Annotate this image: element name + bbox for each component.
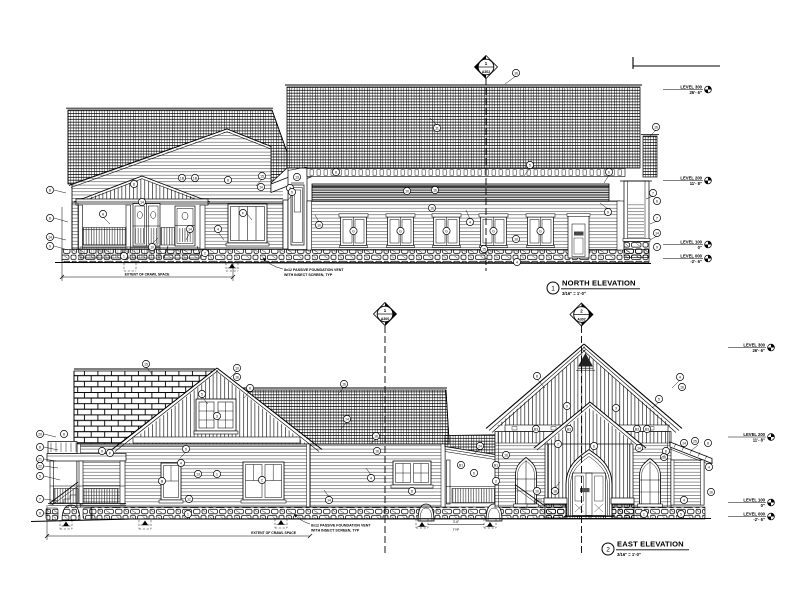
svg-text:1B: 1B xyxy=(193,176,198,180)
svg-text:16: 16 xyxy=(430,206,434,210)
svg-text:B1: B1 xyxy=(494,463,498,467)
svg-text:LEVEL 300: LEVEL 300 xyxy=(743,342,765,347)
svg-text:8: 8 xyxy=(133,182,135,186)
svg-text:F: F xyxy=(109,451,111,455)
svg-text:5: 5 xyxy=(658,397,660,401)
svg-text:3/16" = 1'-0": 3/16" = 1'-0" xyxy=(617,552,641,557)
svg-text:26'- 6": 26'- 6" xyxy=(689,90,702,95)
svg-text:8: 8 xyxy=(63,432,65,436)
svg-text:13: 13 xyxy=(196,472,200,476)
svg-text:4: 4 xyxy=(516,260,518,264)
svg-text:14: 14 xyxy=(637,446,641,450)
svg-text:F: F xyxy=(242,211,244,215)
svg-text:9: 9 xyxy=(39,511,41,515)
svg-text:10: 10 xyxy=(235,366,239,370)
svg-text:4: 4 xyxy=(180,461,182,465)
svg-text:-2'- 6": -2'- 6" xyxy=(690,259,702,264)
svg-text:G: G xyxy=(445,229,448,233)
svg-text:8: 8 xyxy=(227,178,229,182)
svg-text:EAST ELEVATION: EAST ELEVATION xyxy=(617,540,684,549)
svg-text:16: 16 xyxy=(375,449,379,453)
svg-text:6: 6 xyxy=(656,199,658,203)
svg-text:7: 7 xyxy=(557,442,559,446)
svg-text:9: 9 xyxy=(49,244,51,248)
svg-text:3/16" = 1'-0": 3/16" = 1'-0" xyxy=(562,291,586,296)
svg-text:4: 4 xyxy=(679,375,681,379)
svg-text:WITH INSECT SCREEN, TYP: WITH INSECT SCREEN, TYP xyxy=(311,529,360,533)
svg-text:9: 9 xyxy=(101,449,103,453)
svg-text:13: 13 xyxy=(295,175,299,179)
svg-text:LEVEL 200: LEVEL 200 xyxy=(680,175,702,180)
svg-text:2: 2 xyxy=(495,479,497,483)
svg-text:0": 0" xyxy=(761,503,765,508)
svg-text:14: 14 xyxy=(140,200,144,204)
svg-text:4: 4 xyxy=(217,227,219,231)
svg-text:16: 16 xyxy=(504,453,508,457)
svg-text:14: 14 xyxy=(682,441,686,445)
svg-text:3: 3 xyxy=(615,406,617,410)
svg-text:EXTENT OF CRAWL SPACE: EXTENT OF CRAWL SPACE xyxy=(125,273,170,277)
svg-text:WITH INSECT SCREEN, TYP: WITH INSECT SCREEN, TYP xyxy=(284,273,333,277)
svg-text:A302: A302 xyxy=(482,70,490,74)
svg-text:LEVEL 100: LEVEL 100 xyxy=(743,497,765,502)
svg-text:7: 7 xyxy=(39,497,41,501)
svg-text:4: 4 xyxy=(469,220,471,224)
svg-text:10: 10 xyxy=(150,245,154,249)
svg-text:10: 10 xyxy=(709,490,713,494)
svg-text:0": 0" xyxy=(698,245,702,250)
svg-text:14: 14 xyxy=(259,185,263,189)
svg-text:6: 6 xyxy=(593,444,595,448)
svg-text:12: 12 xyxy=(187,497,191,501)
svg-text:16: 16 xyxy=(680,385,684,389)
svg-text:TYP: TYP xyxy=(453,528,459,532)
svg-text:2: 2 xyxy=(606,546,610,553)
svg-text:1: 1 xyxy=(551,285,555,292)
svg-text:1: 1 xyxy=(187,512,189,516)
svg-text:8: 8 xyxy=(536,374,538,378)
svg-text:15: 15 xyxy=(482,247,486,251)
svg-text:14: 14 xyxy=(345,417,349,421)
svg-text:A300: A300 xyxy=(381,317,389,321)
svg-text:1: 1 xyxy=(123,254,125,258)
svg-text:9: 9 xyxy=(185,447,187,451)
svg-text:14: 14 xyxy=(48,235,52,239)
svg-text:B1: B1 xyxy=(459,463,463,467)
svg-text:G: G xyxy=(539,229,542,233)
svg-text:6: 6 xyxy=(249,386,251,390)
svg-text:2: 2 xyxy=(204,251,206,255)
svg-text:14: 14 xyxy=(655,231,659,235)
svg-text:B3: B3 xyxy=(635,427,639,431)
svg-text:10: 10 xyxy=(317,223,321,227)
svg-text:15: 15 xyxy=(260,174,264,178)
svg-text:6: 6 xyxy=(665,449,667,453)
svg-text:1B: 1B xyxy=(180,176,185,180)
svg-text:7: 7 xyxy=(652,191,654,195)
svg-text:8: 8 xyxy=(49,188,51,192)
svg-text:10: 10 xyxy=(405,189,409,193)
svg-text:9: 9 xyxy=(566,404,568,408)
svg-text:16: 16 xyxy=(235,375,239,379)
svg-text:25: 25 xyxy=(693,439,697,443)
svg-text:8: 8 xyxy=(707,441,709,445)
svg-text:LEVEL 000: LEVEL 000 xyxy=(743,511,765,516)
svg-text:G: G xyxy=(399,229,402,233)
svg-text:11'- 8": 11'- 8" xyxy=(753,438,765,443)
svg-text:16: 16 xyxy=(342,382,346,386)
svg-text:LEVEL 300: LEVEL 300 xyxy=(680,84,702,89)
svg-text:EXTENT OF CRAWL SPACE: EXTENT OF CRAWL SPACE xyxy=(251,531,296,535)
svg-text:9: 9 xyxy=(607,210,609,214)
svg-text:16: 16 xyxy=(433,188,437,192)
svg-text:18: 18 xyxy=(553,489,557,493)
svg-text:B3: B3 xyxy=(567,427,571,431)
svg-text:14: 14 xyxy=(188,227,192,231)
svg-text:-2'- 6": -2'- 6" xyxy=(753,517,765,522)
svg-text:G: G xyxy=(492,229,495,233)
svg-text:LEVEL 100: LEVEL 100 xyxy=(680,239,702,244)
svg-text:22: 22 xyxy=(38,464,42,468)
svg-text:9: 9 xyxy=(656,245,658,249)
svg-text:24: 24 xyxy=(478,444,482,448)
svg-text:10: 10 xyxy=(514,237,518,241)
svg-text:9: 9 xyxy=(291,190,293,194)
svg-text:5: 5 xyxy=(39,474,41,478)
svg-text:20: 20 xyxy=(38,432,42,436)
svg-text:21: 21 xyxy=(38,457,42,461)
svg-text:8: 8 xyxy=(49,216,51,220)
svg-text:4: 4 xyxy=(708,465,710,469)
svg-text:5: 5 xyxy=(680,512,682,516)
svg-text:7: 7 xyxy=(656,216,658,220)
svg-text:6: 6 xyxy=(608,170,610,174)
svg-text:14: 14 xyxy=(327,498,331,502)
svg-text:B3: B3 xyxy=(534,427,538,431)
svg-text:8: 8 xyxy=(39,445,41,449)
svg-text:A302: A302 xyxy=(577,317,585,321)
svg-text:5: 5 xyxy=(201,392,203,396)
svg-text:8x12 PASSIVE FOUNDATION VENT: 8x12 PASSIVE FOUNDATION VENT xyxy=(284,268,344,272)
svg-text:LEVEL 000: LEVEL 000 xyxy=(680,253,702,258)
svg-text:G: G xyxy=(352,229,355,233)
svg-text:NORTH ELEVATION: NORTH ELEVATION xyxy=(562,279,636,288)
svg-text:16: 16 xyxy=(514,71,518,75)
svg-text:4: 4 xyxy=(370,476,372,480)
svg-text:1: 1 xyxy=(216,472,218,476)
svg-text:5: 5 xyxy=(529,163,531,167)
svg-text:3: 3 xyxy=(216,414,218,418)
svg-text:B3: B3 xyxy=(645,427,649,431)
svg-text:11: 11 xyxy=(435,126,439,130)
svg-text:4: 4 xyxy=(683,498,685,502)
svg-text:3'-6": 3'-6" xyxy=(453,520,459,524)
svg-text:6: 6 xyxy=(473,471,475,475)
svg-text:LEVEL 200: LEVEL 200 xyxy=(743,432,765,437)
svg-text:16: 16 xyxy=(374,434,378,438)
svg-text:8x12 PASSIVE FOUNDATION VENT: 8x12 PASSIVE FOUNDATION VENT xyxy=(311,524,371,528)
svg-text:16: 16 xyxy=(654,125,658,129)
svg-text:10: 10 xyxy=(535,489,539,493)
svg-text:1: 1 xyxy=(643,512,645,516)
svg-text:26'- 6": 26'- 6" xyxy=(752,348,765,353)
svg-text:15: 15 xyxy=(144,362,148,366)
svg-text:11'- 8": 11'- 8" xyxy=(690,181,702,186)
svg-text:8: 8 xyxy=(335,170,337,174)
